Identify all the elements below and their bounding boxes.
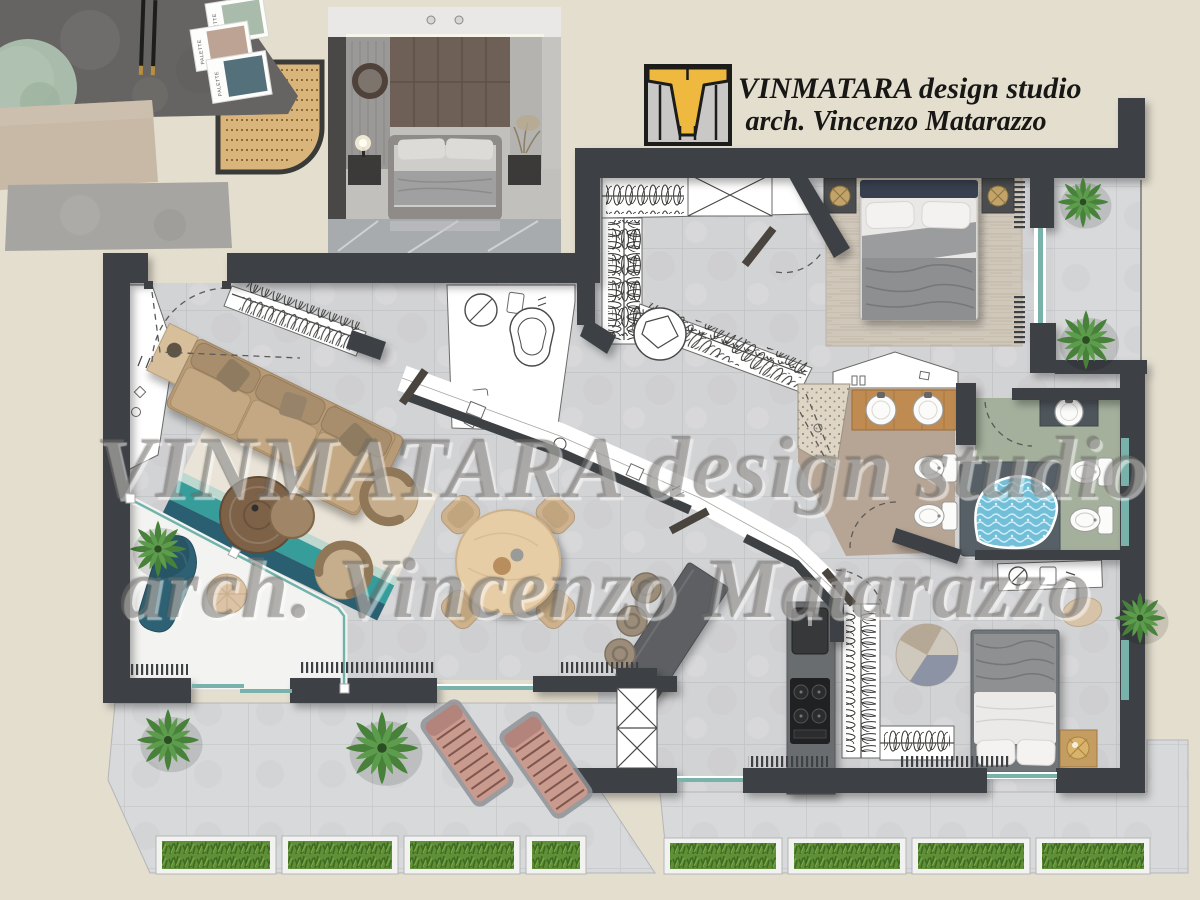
bedroom2-dresser xyxy=(998,560,1103,591)
closet-pouf xyxy=(634,308,686,360)
window xyxy=(1121,640,1129,700)
bidet xyxy=(914,502,957,530)
pillow xyxy=(398,138,446,160)
spot-symbol xyxy=(132,408,141,417)
dining-area xyxy=(437,491,578,632)
logo-monogram xyxy=(644,64,732,146)
bedroom2-bed xyxy=(971,630,1059,772)
x-cabinet-column xyxy=(617,688,657,768)
curtain xyxy=(328,37,346,219)
window xyxy=(1121,498,1129,546)
bedroom1-bed xyxy=(860,180,978,320)
window xyxy=(987,774,1057,778)
bar-stool xyxy=(617,606,647,636)
window xyxy=(677,778,743,782)
nightstand xyxy=(982,178,1014,213)
round-mirror xyxy=(355,66,385,96)
bedroom1 xyxy=(824,178,1022,346)
window xyxy=(1121,438,1129,486)
nightstand xyxy=(824,178,856,213)
pillow xyxy=(922,201,971,229)
nightstand xyxy=(508,155,541,185)
centerpiece xyxy=(493,557,511,575)
toilet xyxy=(1070,458,1113,486)
tile-swatch xyxy=(5,182,232,251)
window xyxy=(1038,228,1043,323)
hedge-planter xyxy=(1042,843,1144,869)
presentation-board: PALETTE PALETTE PALETTE xyxy=(0,0,1200,900)
bar-stool xyxy=(631,573,661,603)
hedge-planter xyxy=(410,841,514,869)
bathtub xyxy=(975,476,1057,548)
basin xyxy=(866,395,896,425)
pillow xyxy=(1017,739,1056,765)
hedge-planter xyxy=(918,843,1024,869)
hedge-planter xyxy=(670,843,776,869)
vanity xyxy=(852,390,958,430)
bedroom2-rug xyxy=(896,624,958,686)
terrace-door-glass xyxy=(192,684,244,688)
hedge-planter xyxy=(288,841,392,869)
moodboard: PALETTE PALETTE PALETTE xyxy=(0,0,330,256)
hedge-planters xyxy=(156,836,1150,874)
basin xyxy=(913,395,943,425)
headboard xyxy=(860,180,978,198)
cooktop xyxy=(790,678,830,744)
hedge-planter xyxy=(794,843,900,869)
fabric-swatch xyxy=(0,100,158,190)
pouf xyxy=(207,574,247,614)
nightstand xyxy=(1060,730,1097,767)
ceiling xyxy=(328,7,561,37)
pillow xyxy=(446,138,494,160)
chair-symbol xyxy=(510,308,554,366)
hedge-planter xyxy=(532,841,580,869)
palette-card: PALETTE xyxy=(206,51,272,104)
bed xyxy=(388,135,502,221)
nightstand xyxy=(348,155,381,185)
pillow xyxy=(866,201,915,229)
window xyxy=(437,686,533,690)
toilet xyxy=(914,454,957,482)
wall-stub-top-right xyxy=(1118,98,1145,150)
bedroom-photo xyxy=(328,7,561,253)
bidet xyxy=(1070,506,1113,534)
hedge-planter xyxy=(162,841,270,869)
